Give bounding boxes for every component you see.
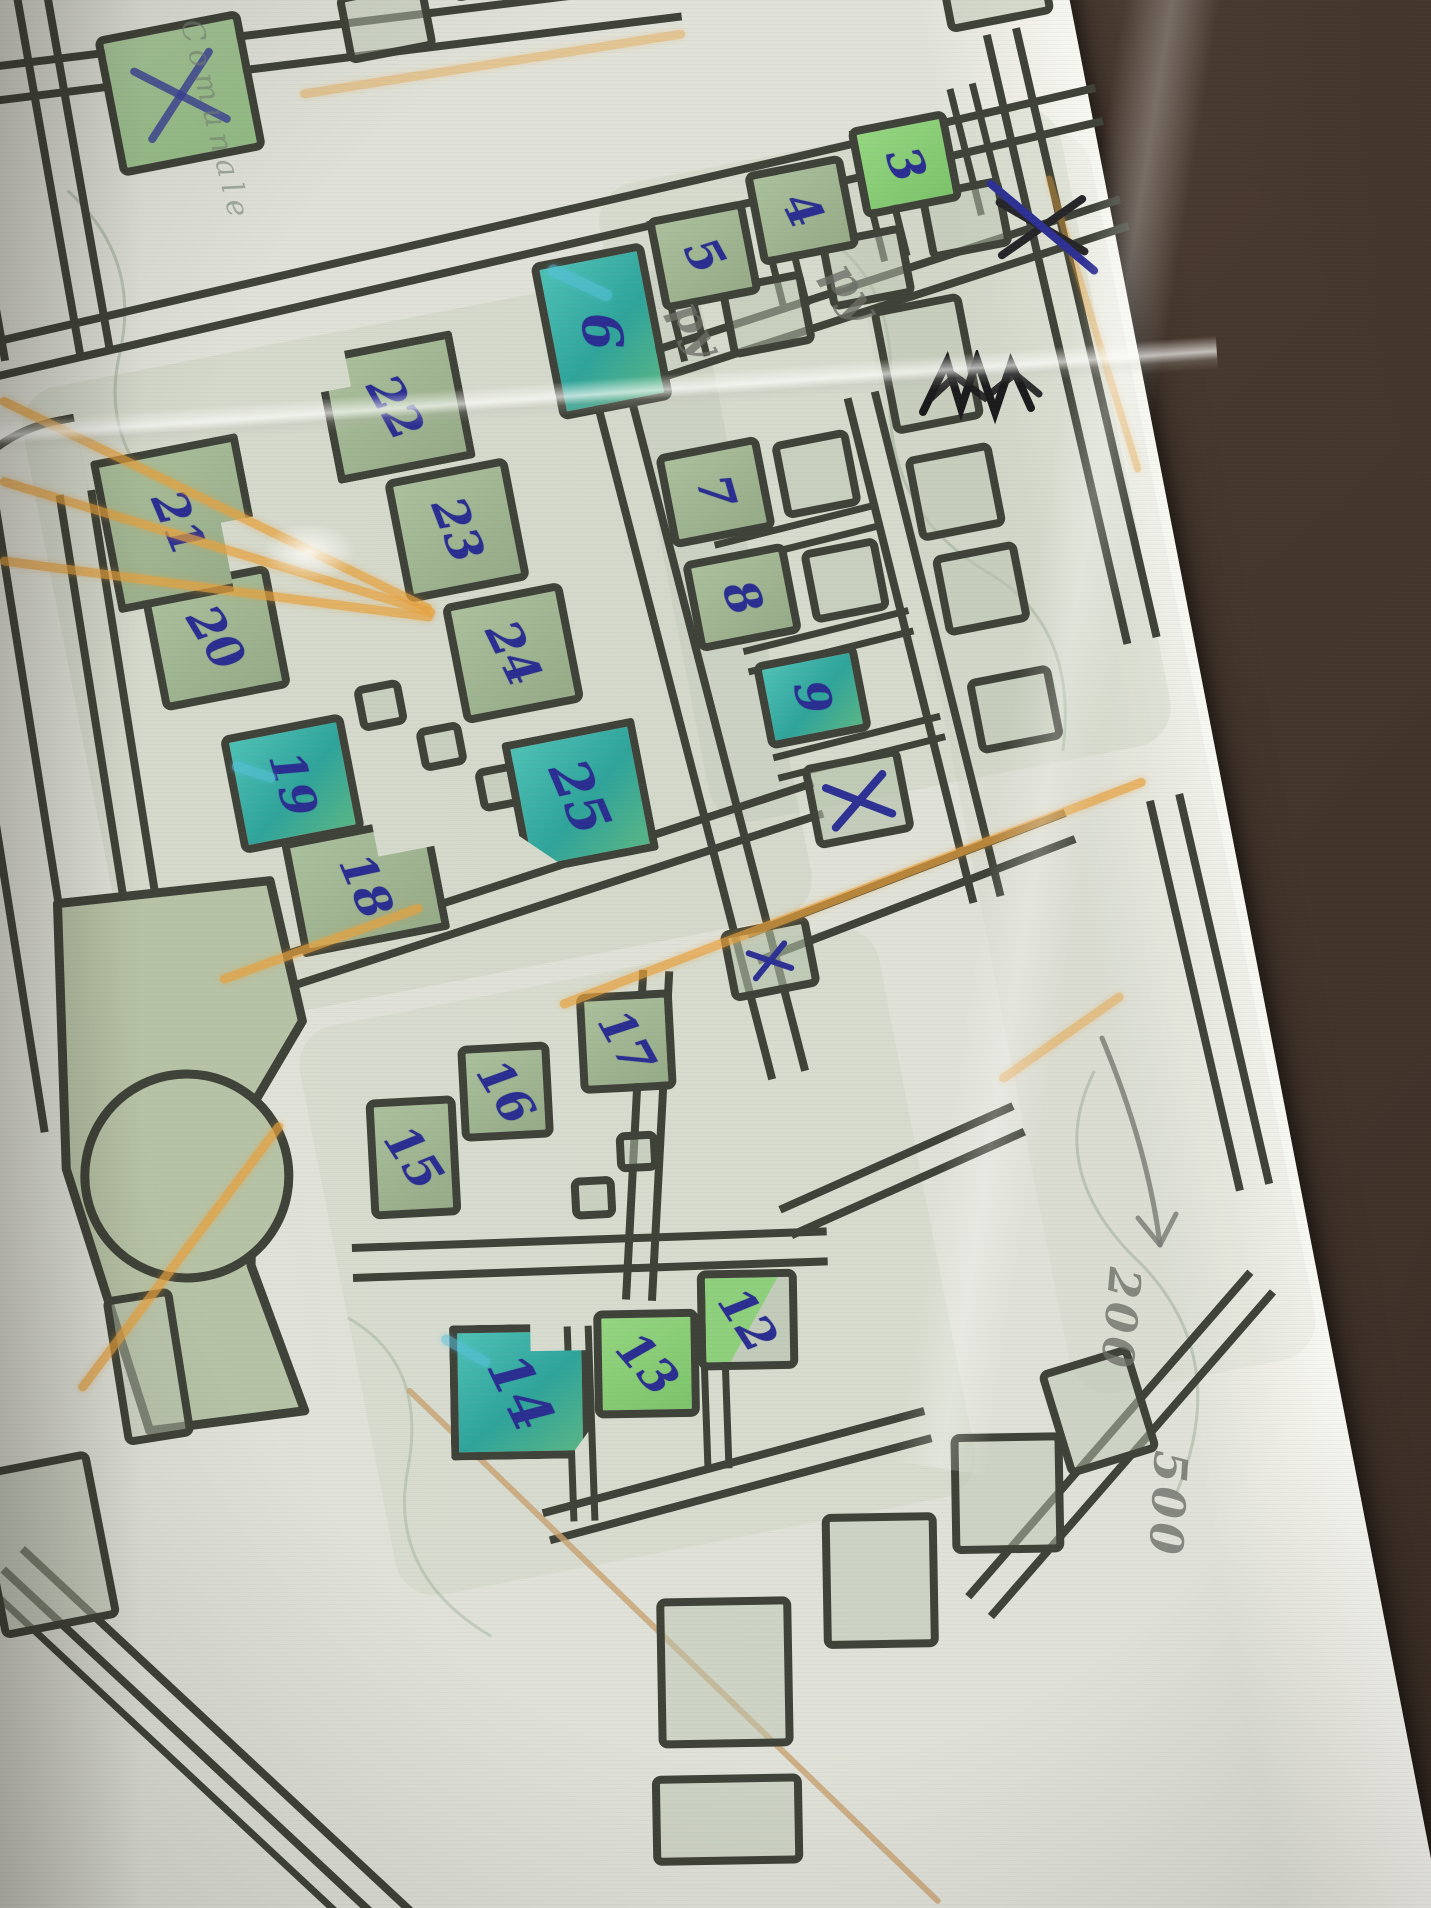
handwritten-number: 23 <box>420 490 495 571</box>
building <box>615 1130 659 1172</box>
pen-x-mark <box>743 935 796 982</box>
pen-x-mark <box>818 762 899 835</box>
building <box>652 1773 804 1866</box>
building <box>570 1176 616 1220</box>
building-23: 23 <box>384 457 531 604</box>
handwritten-number: 12 <box>707 1277 789 1362</box>
building <box>656 1596 794 1748</box>
arrow-shaft <box>1102 1038 1160 1245</box>
building-12: 12 <box>697 1269 799 1371</box>
handwritten-number: 4 <box>770 184 834 238</box>
handwritten-number: 24 <box>474 612 552 695</box>
building-15: 15 <box>365 1095 461 1220</box>
building <box>822 1512 939 1649</box>
handwritten-number: 16 <box>465 1049 546 1133</box>
x-stroke <box>751 939 788 983</box>
building <box>931 540 1031 637</box>
handwritten-number: 13 <box>604 1321 688 1406</box>
handwritten-number: 7 <box>685 469 747 516</box>
handwritten-number: 3 <box>873 139 936 189</box>
handwritten-number: 17 <box>586 1000 666 1084</box>
worn-spot <box>262 522 357 582</box>
building-8: 8 <box>682 542 803 652</box>
margin-x-mark <box>995 185 1090 265</box>
handwritten-number: 6 <box>568 309 636 353</box>
building <box>353 678 409 732</box>
paper-rotation-frame: 3 4 5 6 7 8 9 <box>0 0 1 1</box>
handwritten-number: 20 <box>175 596 256 680</box>
x-stroke <box>830 769 888 834</box>
building-24: 24 <box>442 582 585 725</box>
building-19: 19 <box>220 713 366 855</box>
building-4: 4 <box>744 154 860 266</box>
building-16: 16 <box>457 1041 554 1142</box>
building-7: 7 <box>655 435 776 548</box>
building-17: 17 <box>576 989 677 1094</box>
handwritten-number: 9 <box>782 675 843 719</box>
handwritten-number: 5 <box>672 228 736 283</box>
pencil-arrow <box>1080 1020 1200 1280</box>
building-3: 3 <box>847 110 963 219</box>
building <box>771 428 862 519</box>
pencil-note: 200 <box>1090 1266 1150 1374</box>
building <box>904 441 1007 542</box>
handwritten-number: 15 <box>373 1115 455 1200</box>
handwritten-number: 19 <box>257 745 328 823</box>
photographed-paper-map: 3 4 5 6 7 8 9 <box>0 0 1431 1908</box>
building <box>800 537 891 625</box>
handwritten-number: 25 <box>536 749 624 843</box>
building-13: 13 <box>593 1309 700 1419</box>
pencil-note: 500 <box>1138 1449 1198 1560</box>
handwritten-number: 8 <box>711 572 774 622</box>
building <box>415 720 469 772</box>
